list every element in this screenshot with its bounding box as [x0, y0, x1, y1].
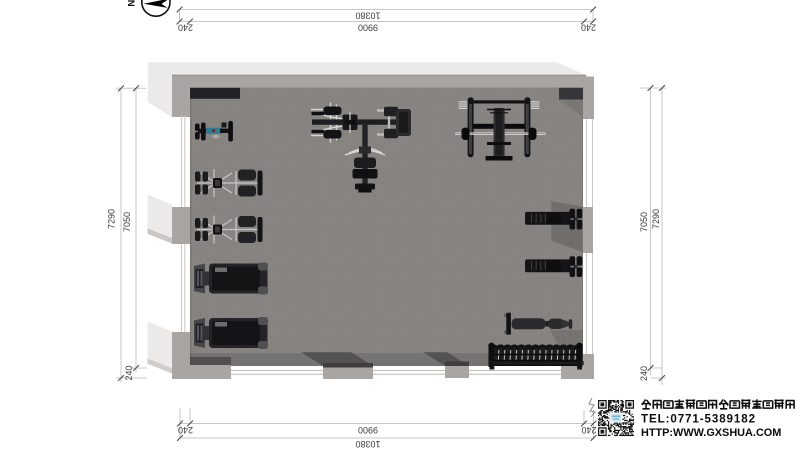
svg-text:TEL:0771-5389182: TEL:0771-5389182 — [641, 413, 756, 426]
svg-text:9900: 9900 — [358, 22, 378, 32]
svg-text:7290: 7290 — [106, 209, 116, 229]
svg-text:7050: 7050 — [122, 212, 132, 232]
svg-text:10380: 10380 — [355, 10, 380, 20]
svg-text:240: 240 — [178, 425, 193, 435]
svg-text:240: 240 — [581, 22, 596, 32]
svg-text:240: 240 — [639, 366, 649, 381]
svg-text:7290: 7290 — [651, 209, 661, 229]
svg-text:HTTP:WWW.GXSHUA.COM: HTTP:WWW.GXSHUA.COM — [641, 427, 781, 439]
svg-text:240: 240 — [124, 365, 134, 380]
svg-text:240: 240 — [581, 425, 596, 435]
svg-text:N: N — [126, 0, 137, 7]
svg-text:9900: 9900 — [358, 425, 378, 435]
svg-text:240: 240 — [178, 22, 193, 32]
svg-text:7050: 7050 — [639, 212, 649, 232]
svg-text:10380: 10380 — [355, 439, 380, 449]
